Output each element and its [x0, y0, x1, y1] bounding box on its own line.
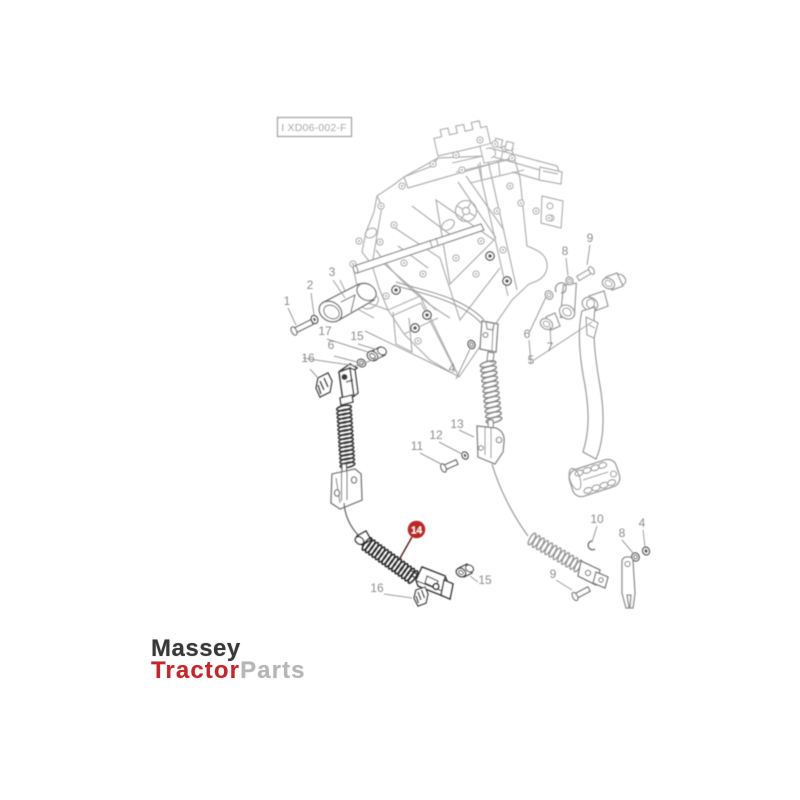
svg-text:6: 6	[524, 327, 531, 341]
svg-text:15: 15	[350, 329, 364, 343]
svg-text:4: 4	[449, 361, 456, 375]
svg-text:3: 3	[329, 265, 336, 279]
svg-text:8: 8	[619, 526, 626, 540]
svg-text:1: 1	[284, 294, 291, 308]
svg-text:16: 16	[301, 351, 315, 365]
svg-text:I XD06-002-F: I XD06-002-F	[281, 122, 346, 134]
svg-text:7: 7	[547, 340, 554, 354]
svg-text:16: 16	[370, 581, 384, 595]
svg-text:10: 10	[590, 512, 604, 526]
svg-text:12: 12	[429, 428, 443, 442]
svg-text:17: 17	[318, 324, 332, 338]
svg-text:13: 13	[450, 417, 464, 431]
svg-text:11: 11	[411, 439, 424, 453]
svg-text:2: 2	[307, 278, 314, 292]
svg-text:9: 9	[550, 567, 557, 581]
svg-text:6: 6	[328, 338, 335, 352]
svg-text:9: 9	[587, 231, 594, 245]
svg-text:4: 4	[639, 516, 646, 530]
svg-text:8: 8	[562, 244, 569, 258]
svg-text:14: 14	[411, 526, 423, 537]
svg-text:15: 15	[478, 573, 492, 587]
svg-text:5: 5	[528, 353, 535, 367]
